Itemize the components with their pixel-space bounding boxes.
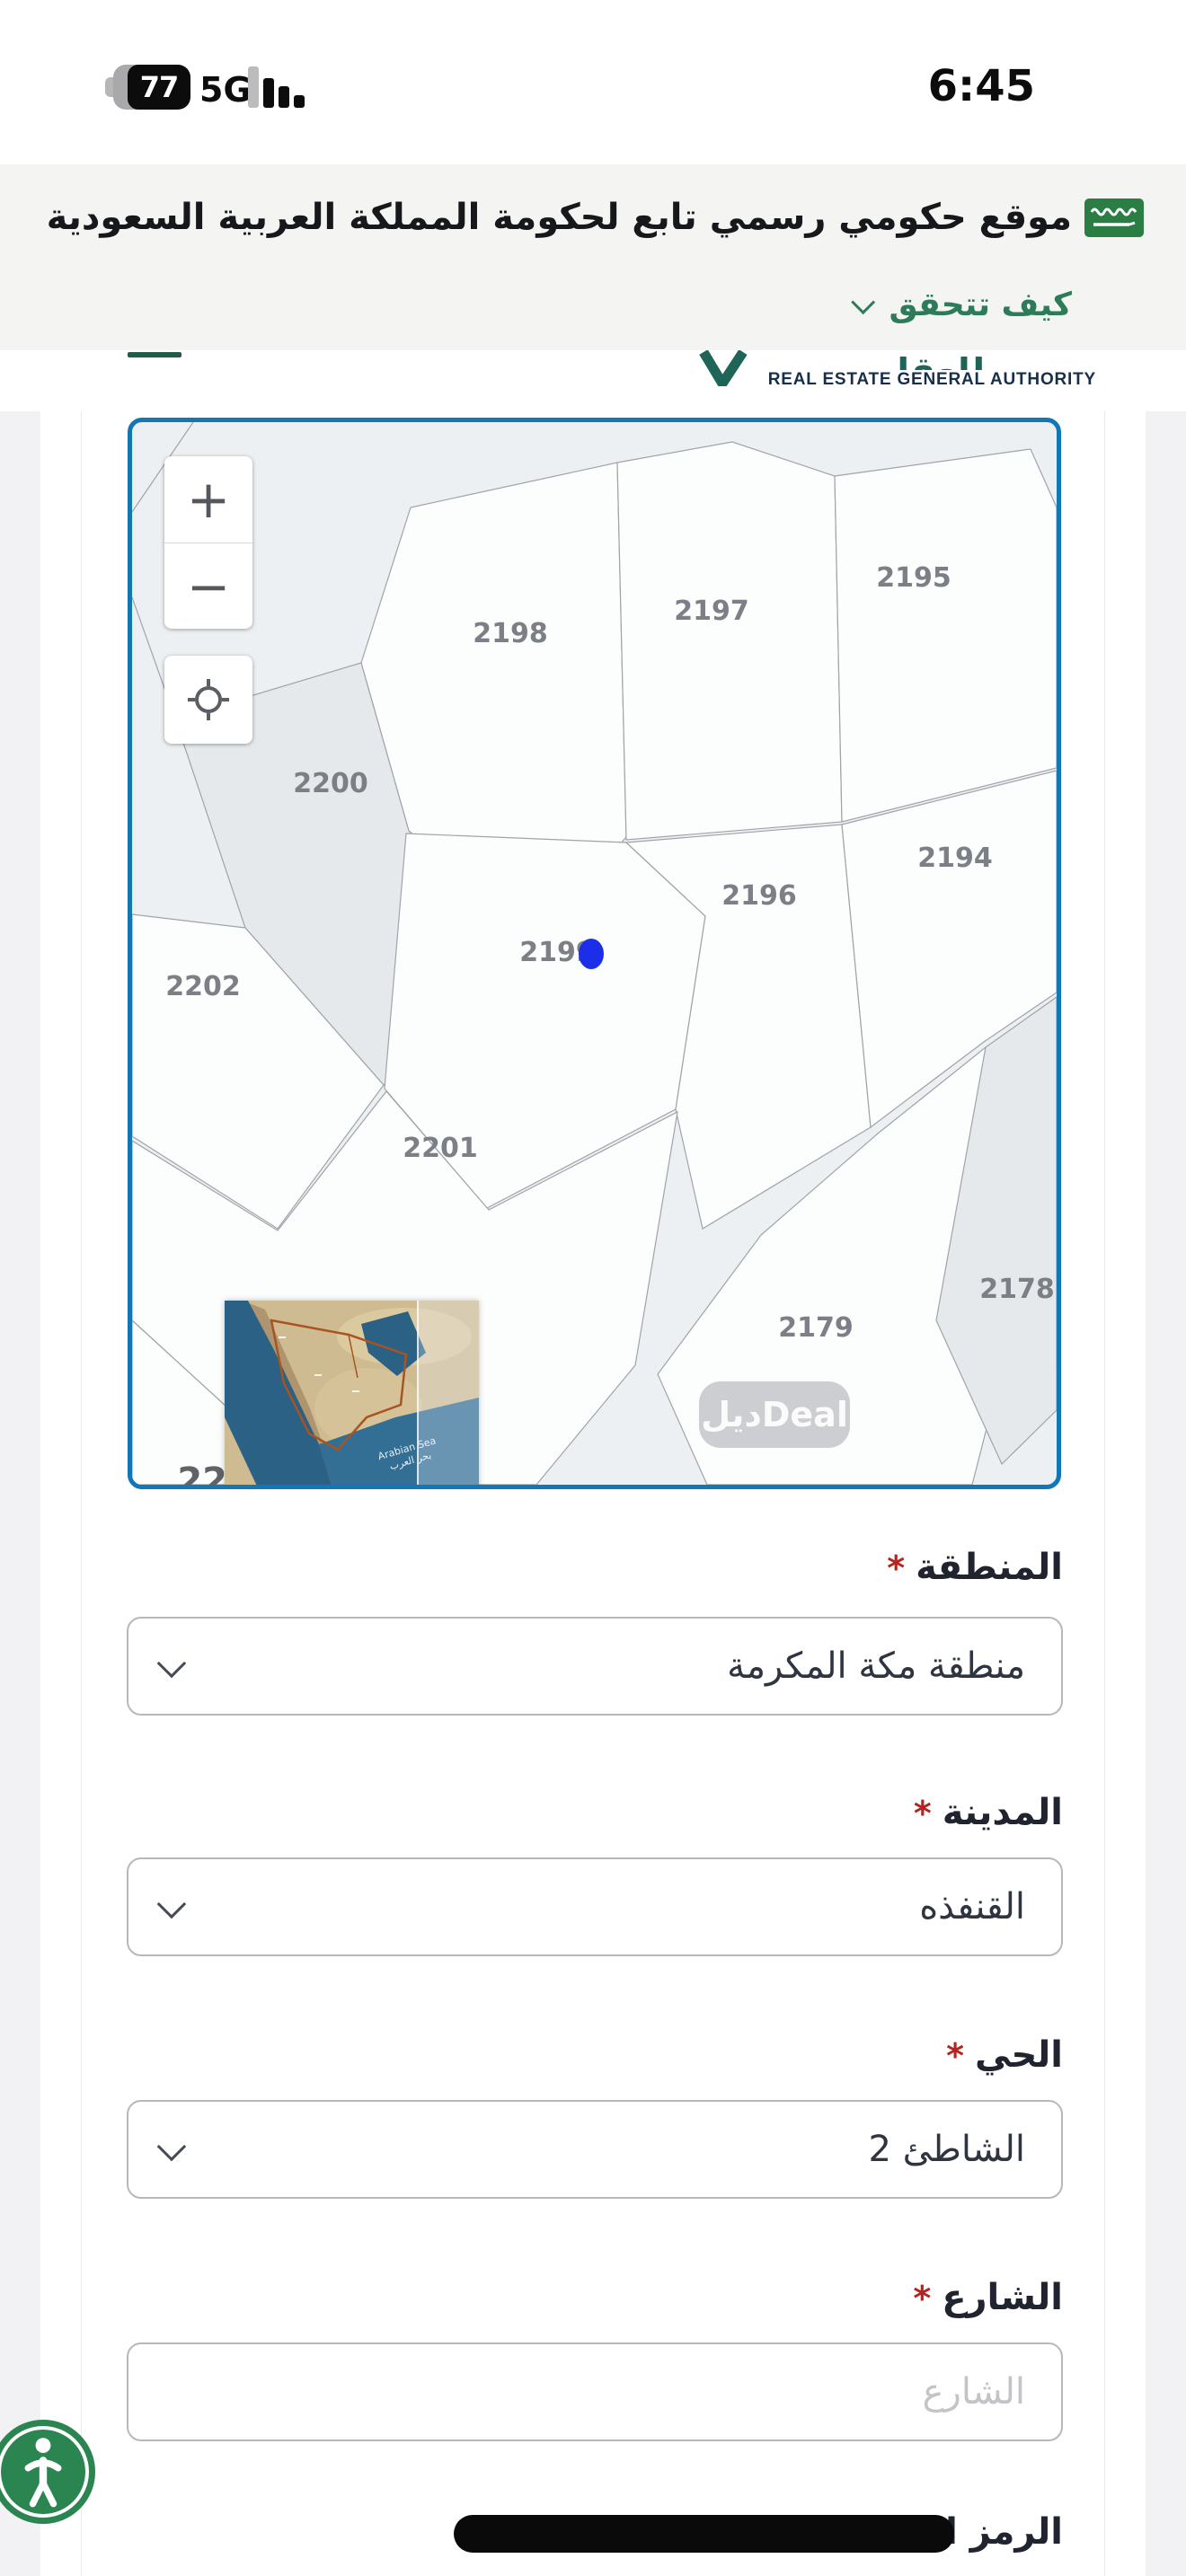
parcel-number: 2194 (917, 842, 993, 874)
region-select[interactable]: منطقة مكة المكرمة (127, 1617, 1063, 1716)
map-marker (579, 939, 604, 969)
card-right-border (1104, 411, 1105, 2576)
district-select-value: الشاطئ 2 (868, 2129, 1025, 2170)
map-watermark: ديلDeal (699, 1381, 850, 1448)
saudi-flag-icon (1084, 198, 1144, 237)
chevron-down-icon (157, 1648, 187, 1678)
district-select[interactable]: الشاطئ 2 (127, 2100, 1063, 2199)
parcel-number: 2201 (403, 1133, 478, 1164)
mobile-screen: 77 5G 6:45 موقع حكومي رسمي تابع لحكومة ا… (0, 0, 1186, 2576)
parcel-number: 2196 (721, 880, 797, 912)
city-select[interactable]: القنفذه (127, 1857, 1063, 1956)
rega-v-mark-icon (698, 350, 750, 390)
required-asterisk: * (887, 1547, 905, 1590)
signal-bars-icon (248, 66, 311, 108)
rega-logo[interactable]: الهيئة العامة للعقار REAL ESTATE GENERAL… (698, 350, 1096, 390)
zoom-controls: + − (164, 456, 252, 629)
overview-minimap: Arabian Sea بحر العرب (225, 1301, 479, 1489)
city-select-value: القنفذه (919, 1886, 1025, 1928)
zoom-in-button[interactable]: + (164, 456, 252, 543)
parcel-number: 2178 (979, 1274, 1055, 1305)
field-label-city: المدينة* (914, 1792, 1063, 1835)
chevron-down-icon (157, 2131, 187, 2161)
site-header: الهيئة العامة للعقار REAL ESTATE GENERAL… (0, 350, 1186, 411)
parcel-shape (617, 442, 842, 840)
gov-banner: موقع حكومي رسمي تابع لحكومة المملكة العر… (0, 164, 1186, 350)
field-label-district: الحي* (946, 2034, 1063, 2078)
network-type: 5G (199, 70, 252, 110)
crosshair-icon (187, 678, 230, 721)
locate-me-button[interactable] (164, 656, 252, 744)
rega-english-name: REAL ESTATE GENERAL AUTHORITY (768, 370, 1096, 390)
parcel-shape (835, 449, 1057, 822)
gov-banner-title: موقع حكومي رسمي تابع لحكومة المملكة العر… (47, 197, 1072, 238)
required-asterisk: * (946, 2034, 964, 2078)
required-asterisk: * (913, 2277, 931, 2320)
chevron-down-icon (852, 290, 876, 314)
rega-arabic-name-clipped: الهيئة العامة للعقار (768, 357, 985, 370)
how-to-verify-label: كيف تتحقق (889, 287, 1072, 323)
menu-icon[interactable] (128, 352, 181, 357)
accessibility-person-icon (20, 2434, 66, 2510)
status-bar: 77 5G 6:45 (0, 0, 1186, 135)
field-label-region: المنطقة* (887, 1547, 1063, 1590)
parcel-number: 2200 (293, 768, 368, 799)
status-time: 6:45 (928, 61, 1035, 111)
page-left-gutter (0, 411, 40, 2576)
region-select-value: منطقة مكة المكرمة (727, 1645, 1025, 1687)
parcel-number: 2197 (674, 595, 749, 627)
how-to-verify-link[interactable]: كيف تتحقق (857, 287, 1072, 323)
chevron-down-icon (157, 1889, 187, 1919)
battery-percent: 77 (140, 70, 179, 104)
parcel-number: 2179 (778, 1312, 854, 1344)
parcel-number: 2198 (473, 618, 548, 649)
page-right-gutter (1146, 411, 1186, 2576)
field-label-street: الشارع* (913, 2277, 1063, 2320)
parcel-map[interactable]: 2198219721952200219621942202219922012179… (128, 418, 1061, 1489)
postal-code-redacted-bar (454, 2515, 954, 2553)
card-left-border (81, 411, 82, 2576)
street-input[interactable] (127, 2342, 1063, 2441)
battery-icon: 77 (113, 65, 190, 110)
zoom-out-button[interactable]: − (164, 543, 252, 629)
parcel-number: 2202 (165, 971, 241, 1002)
required-asterisk: * (914, 1792, 932, 1835)
parcel-number: 2195 (876, 562, 951, 594)
